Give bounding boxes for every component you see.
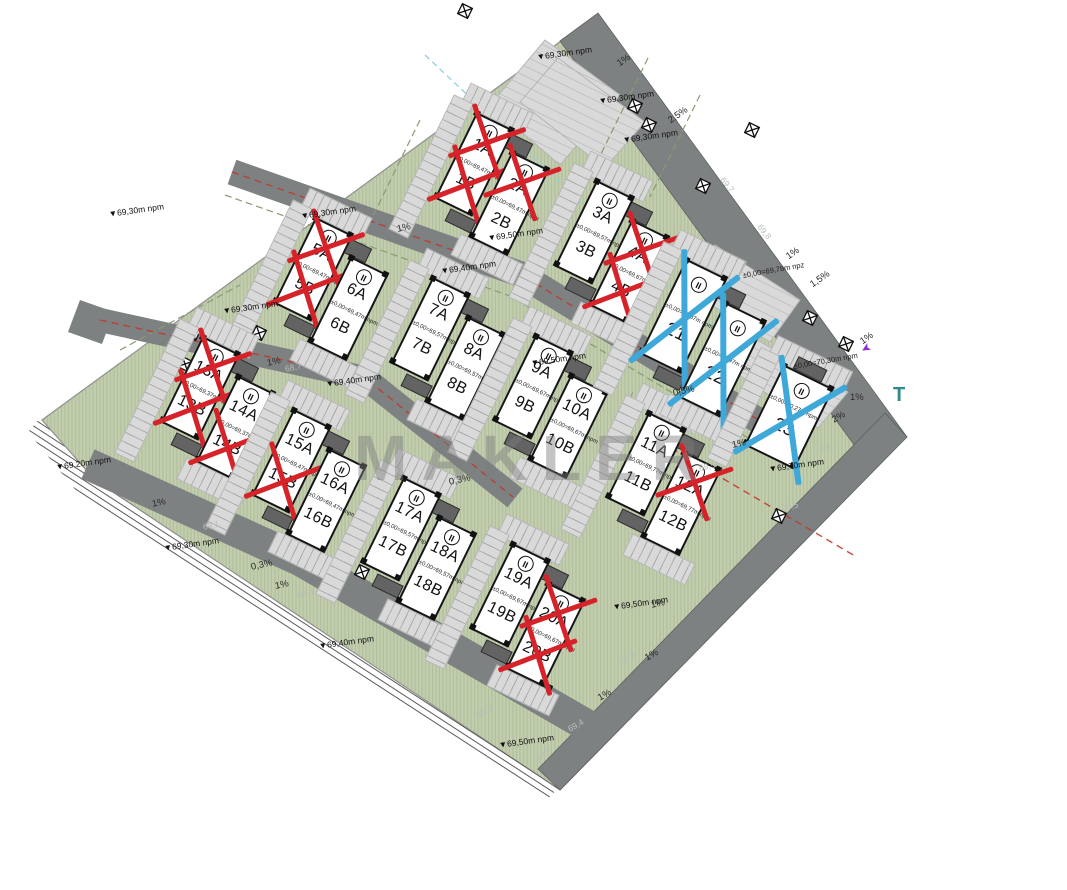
corner-marker (429, 274, 437, 282)
letter-t-label: T (893, 384, 905, 407)
corner-marker (508, 149, 516, 157)
corner-marker (389, 357, 397, 365)
corner-marker (394, 574, 402, 582)
corner-marker (250, 489, 258, 497)
corner-marker (423, 374, 431, 382)
corner-marker (324, 423, 332, 431)
corner-marker (199, 333, 207, 341)
corner-marker (720, 274, 728, 282)
corner-marker (507, 126, 515, 134)
corner-marker (464, 314, 472, 322)
corner-marker (469, 623, 477, 631)
corner-marker (463, 291, 471, 299)
corner-marker (435, 514, 443, 522)
site-plan: II1A±0,00=69,47m npm1BII2A±0,00=69,47m n… (0, 0, 1067, 890)
corner-marker (780, 362, 788, 370)
corner-marker (587, 277, 595, 285)
corner-marker (325, 446, 333, 454)
corner-marker (567, 372, 575, 380)
corner-marker (433, 192, 441, 200)
corner-marker (347, 254, 355, 262)
corner-marker (467, 209, 475, 217)
slope-percent-label: 1% (850, 392, 864, 403)
corner-marker (628, 217, 636, 225)
watermark: MAKLER (354, 421, 712, 495)
corner-marker (543, 557, 551, 565)
corner-marker (503, 640, 511, 648)
corner-marker (193, 433, 201, 441)
survey-marker (745, 123, 760, 138)
storey-badge: II (791, 380, 812, 401)
corner-marker (233, 350, 241, 358)
corner-marker (284, 506, 292, 514)
corner-marker (473, 109, 481, 117)
corner-marker (290, 406, 298, 414)
corner-marker (360, 557, 368, 565)
corner-marker (683, 256, 691, 264)
corner-marker (721, 299, 729, 307)
corner-marker (346, 231, 354, 239)
corner-marker (638, 348, 646, 356)
corner-marker (306, 314, 314, 322)
corner-marker (639, 509, 647, 517)
corner-marker (509, 540, 517, 548)
storey-badge: II (727, 318, 748, 339)
corner-marker (234, 373, 242, 381)
corner-marker (553, 260, 561, 268)
corner-marker (627, 194, 635, 202)
corner-marker (544, 580, 552, 588)
survey-marker (458, 4, 473, 19)
corner-marker (593, 177, 601, 185)
storey-badge: II (688, 274, 709, 295)
corner-marker (159, 416, 167, 424)
corner-marker (532, 332, 540, 340)
corner-marker (645, 409, 653, 417)
corner-marker (676, 366, 684, 374)
